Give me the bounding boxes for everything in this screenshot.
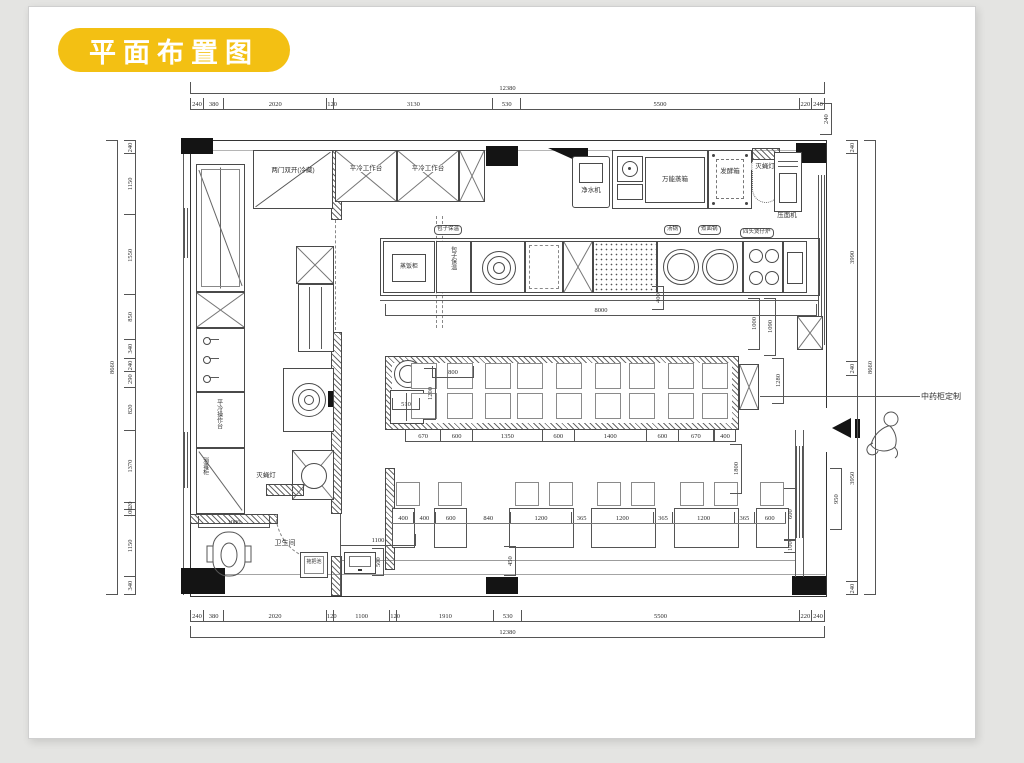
equipment-proofer: 发酵箱 [708, 150, 752, 209]
burner-ring [301, 463, 327, 489]
burner-unit [617, 156, 643, 182]
mop-sink: 拖把池 [300, 552, 328, 578]
equipment-four-burner [743, 241, 783, 293]
steam-door: 蒸饭柜 [392, 254, 426, 282]
dim-corner-240: 240 [820, 103, 832, 135]
stool [438, 482, 462, 506]
dim-450: 450 [504, 546, 516, 576]
purifier-panel [579, 163, 603, 183]
burner-drawer [617, 184, 643, 200]
proofer-door: 发酵箱 [716, 159, 744, 199]
stool [702, 363, 728, 389]
dim-top-chain: 240380202012031305305500220240 [190, 98, 825, 110]
equipment-cabinet [563, 241, 593, 293]
fly-lamp-label: 灭蝇灯 [238, 472, 294, 479]
dim-1800: 1800 [730, 444, 742, 494]
equipment-label: 发酵箱 [717, 168, 743, 175]
stool [517, 393, 543, 419]
equipment-pot-station [657, 241, 743, 293]
window [184, 208, 190, 258]
stool [668, 393, 694, 419]
equipment-label: 净水机 [573, 187, 609, 194]
equipment-double-door-fridge: 两门双开(冷藏) [253, 150, 333, 209]
dim-600: 600 [784, 488, 796, 540]
burner [749, 249, 763, 263]
stool [485, 363, 511, 389]
equipment-label: 蒸饭柜 [393, 264, 425, 271]
column [181, 138, 213, 154]
dim-400-right: 400 [714, 430, 736, 442]
stool [595, 393, 621, 419]
window [796, 446, 803, 538]
equipment-cabinet [459, 150, 485, 202]
room-label-toilet: 卫生间 [262, 540, 308, 548]
equipment-tall-fridge [196, 164, 245, 292]
callout-noodle-pot: 煮面锅 [698, 225, 721, 235]
dim-1090: 1090 [764, 298, 776, 356]
stool [515, 482, 539, 506]
partition-line [803, 430, 804, 577]
fly-lamp-grille [266, 484, 304, 496]
stool [668, 363, 694, 389]
callout-line [760, 396, 920, 397]
dim-bottom-chain: 2403802020120110012019105305500220240 [190, 610, 825, 622]
screw [745, 202, 748, 205]
noodle-pot-inner [706, 253, 734, 281]
equipment-label: 平冷工作台 [336, 165, 396, 172]
dim-left-chain: 2401150155085034024029082013701201001150… [124, 140, 136, 595]
dim-toilet-width: 1000 [198, 516, 270, 528]
dim-bottom-total: 12380 [190, 626, 825, 638]
stool [629, 393, 655, 419]
equipment-sink-counter [196, 328, 245, 392]
stool [631, 482, 655, 506]
page: { "title": { "badge": "平面布置图" }, "colors… [0, 0, 1024, 763]
dashed-partition [335, 220, 336, 330]
equipment-water-purifier: 净水机 [572, 156, 610, 208]
burner [765, 271, 779, 285]
fridge-door-frame [201, 169, 240, 287]
dim-right-chain: 24039902403950240 [846, 140, 858, 595]
dim-right-total: 8660 [864, 140, 876, 595]
shelf-line [309, 287, 310, 349]
soup-pot-inner [667, 253, 695, 281]
equipment-cold-worktable: 平冷工作台 [397, 150, 459, 202]
mop-sink-label: 拖把池 [301, 560, 327, 566]
equipment-combi-station: 万能蒸箱 [612, 150, 708, 209]
dim-top-total: 12380 [190, 82, 825, 94]
equipment-cold-table [525, 241, 563, 293]
dim-950: 950 [830, 468, 842, 530]
equipment-cold-counter: 平冷操作台 [196, 392, 245, 448]
dim-500: 500 [372, 548, 384, 576]
column [486, 577, 518, 594]
stool [485, 393, 511, 419]
equipment-cabinet [783, 241, 807, 293]
dim-800: 800 [432, 366, 474, 378]
stool [702, 393, 728, 419]
stool [396, 482, 420, 506]
display-base [358, 569, 362, 571]
stool [556, 393, 582, 419]
wok-ring-inner [493, 262, 505, 274]
equipment-label: 消毒柜 [201, 457, 208, 475]
press-line [778, 161, 798, 162]
drain-grate [593, 241, 657, 293]
cabinet-door [787, 252, 803, 284]
stove-control [328, 391, 333, 407]
stool [595, 363, 621, 389]
equipment-wok-burner [471, 241, 525, 293]
stool [629, 363, 655, 389]
stool [556, 363, 582, 389]
equipment-cabinet [196, 292, 245, 328]
stool [597, 482, 621, 506]
callout-soup-pot: 汤锅 [664, 225, 681, 235]
callout-clay-pot-stove: 四头煲仔炉 [740, 228, 774, 238]
callout-bun-warmer: 包子保温 [434, 225, 462, 235]
floor-line [340, 560, 795, 561]
equipment-label: 两门双开(冷藏) [254, 167, 332, 174]
press-line [778, 166, 798, 167]
equipment-cold-worktable: 平冷工作台 [335, 150, 397, 202]
screw [712, 202, 715, 205]
dim-1200: 1200 [424, 368, 436, 420]
faucet-stem [209, 339, 219, 340]
shelf-line [321, 287, 322, 349]
column [486, 146, 518, 166]
stool [549, 482, 573, 506]
equipment-label: 平冷工作台 [398, 165, 458, 172]
faucet-stem [209, 377, 219, 378]
wall-cabinet [797, 316, 823, 350]
dim-1000: 1000 [748, 298, 760, 350]
herb-cabinet-note: 中药柜定制 [921, 392, 961, 401]
equipment-cabinet [296, 246, 334, 284]
equipment-steam-cabinet: 蒸饭柜 [383, 241, 435, 293]
entrance-opening [816, 408, 827, 452]
display-screen [349, 556, 371, 567]
window [184, 432, 190, 488]
dim-1280: 1280 [772, 358, 784, 404]
floor-plan: 12380 240380202012031305305500220240 240… [0, 0, 1024, 763]
dim-100: 100 [784, 540, 796, 553]
screw [712, 154, 715, 157]
equipment-bun-warmer: 包子保温 [436, 241, 471, 293]
stool [447, 393, 473, 419]
faucet-stem [209, 358, 219, 359]
dim-1100: 1100 [340, 534, 416, 546]
equipment-shelf [298, 284, 334, 352]
wok-ring-inner [304, 395, 314, 405]
equipment-sterilizer: 消毒柜 [196, 448, 245, 514]
equipment-wok-stove [283, 368, 334, 432]
combi-oven-body: 万能蒸箱 [645, 157, 705, 203]
dim-510: 510 [392, 398, 420, 410]
press-body [779, 173, 797, 203]
equipment-label: 包子保温 [449, 246, 456, 270]
burner-center [628, 167, 631, 170]
screw [745, 154, 748, 157]
column [792, 576, 826, 595]
stool [680, 482, 704, 506]
equipment-label: 平冷操作台 [215, 399, 222, 429]
toilet-wall-line [340, 514, 341, 595]
noodle-press-label: 压面机 [762, 212, 812, 219]
burner [749, 271, 763, 285]
squat-toilet [206, 530, 252, 578]
equipment-noodle-press [774, 152, 802, 212]
burner [765, 249, 779, 263]
cold-table-top [529, 245, 559, 289]
stool [760, 482, 784, 506]
dim-counter-chain: 67060013506001400600670 [405, 430, 714, 442]
dim-tables-chain: 400400600840120036512003651200365600 [392, 512, 786, 524]
dim-left-total: 8660 [106, 140, 118, 595]
stool [517, 363, 543, 389]
dim-400: 400 [652, 286, 664, 310]
side-cabinet [739, 364, 759, 410]
equipment-label: 万能蒸箱 [646, 176, 704, 183]
